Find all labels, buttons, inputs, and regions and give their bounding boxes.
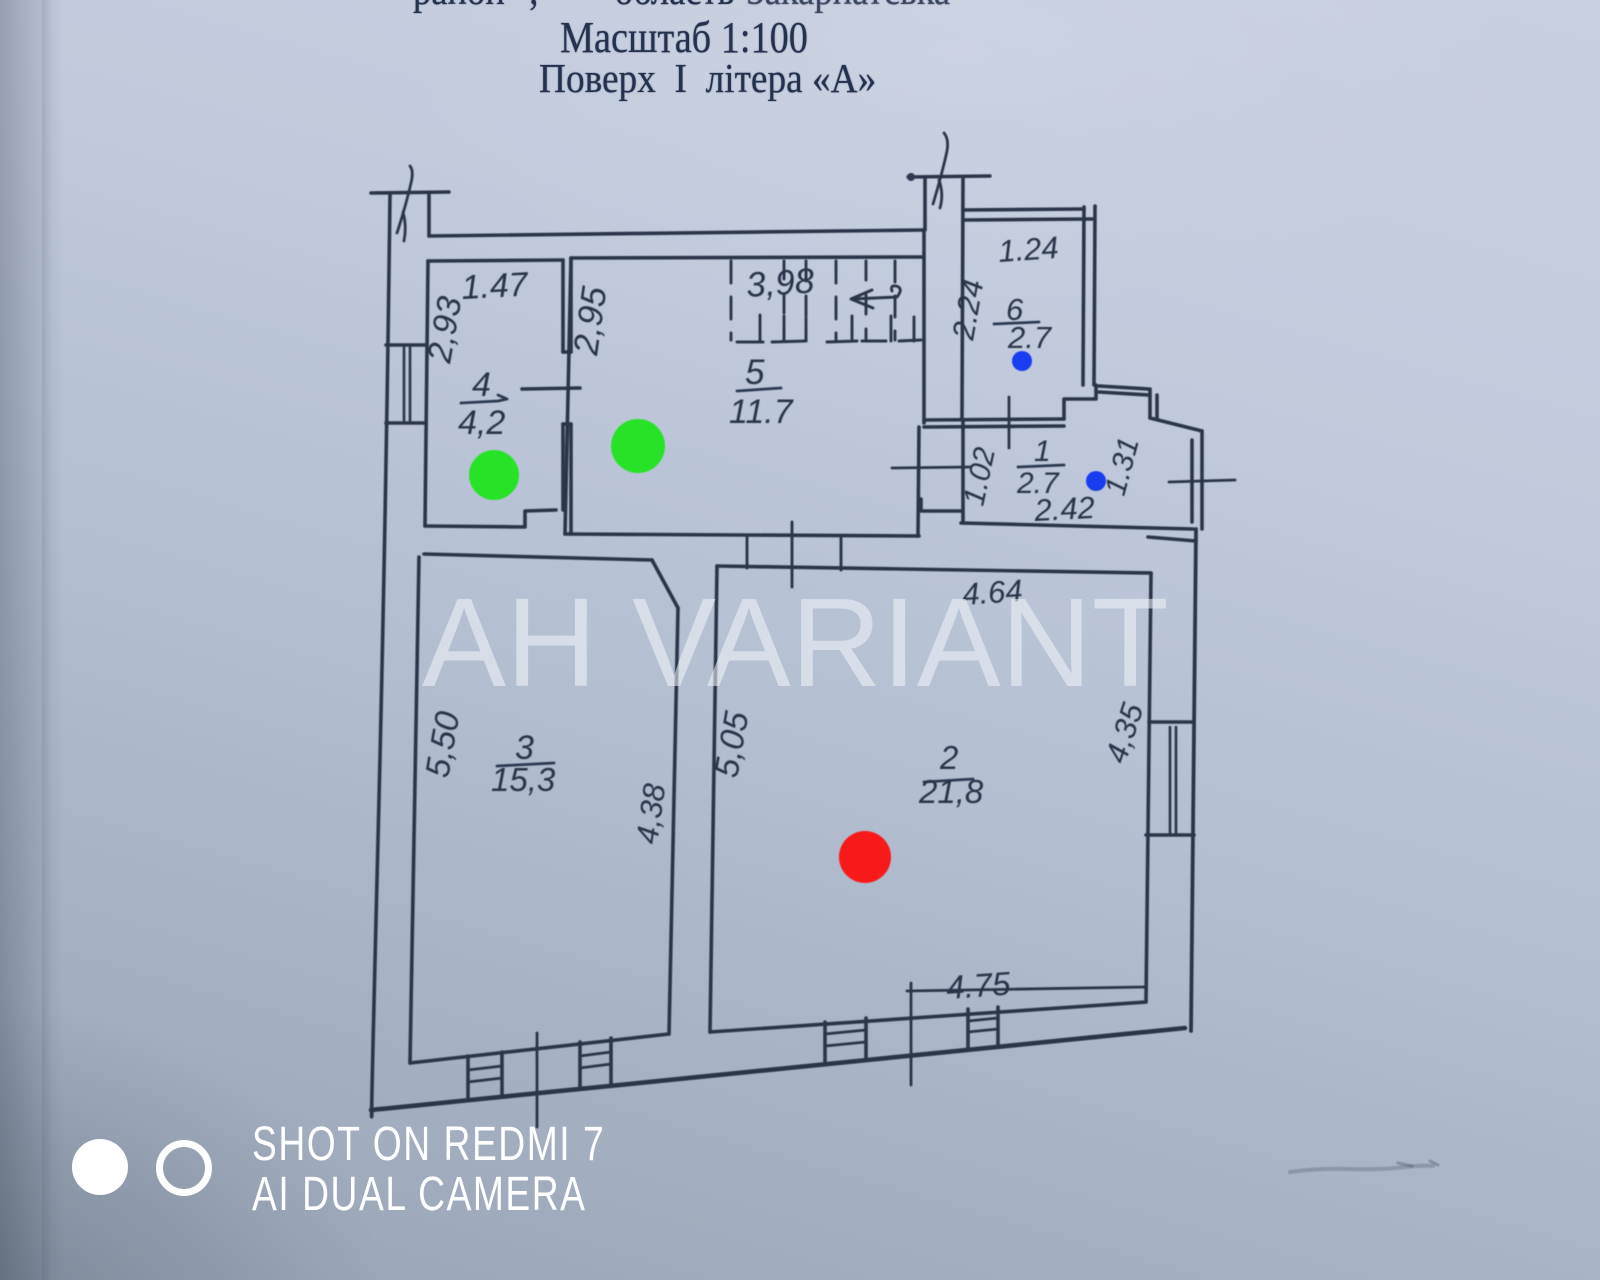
- svg-text:1.47: 1.47: [460, 266, 529, 307]
- svg-text:2.42: 2.42: [1033, 490, 1096, 528]
- svg-text:15,3: 15,3: [491, 761, 556, 798]
- svg-text:1.24: 1.24: [997, 230, 1060, 269]
- svg-text:4.75: 4.75: [945, 965, 1012, 1006]
- svg-text:5: 5: [745, 353, 765, 392]
- svg-text:5,50: 5,50: [418, 709, 467, 781]
- svg-text:4: 4: [472, 366, 491, 404]
- svg-text:2.24: 2.24: [945, 277, 990, 343]
- svg-text:1: 1: [1034, 435, 1051, 468]
- svg-text:2: 2: [939, 739, 958, 776]
- svg-text:1.31: 1.31: [1099, 434, 1146, 499]
- svg-text:11.7: 11.7: [729, 393, 794, 431]
- svg-text:3,98: 3,98: [745, 261, 816, 305]
- svg-text:2.7: 2.7: [1007, 320, 1053, 355]
- svg-text:4,38: 4,38: [629, 781, 672, 846]
- svg-text:2,95: 2,95: [566, 284, 614, 358]
- svg-text:21,8: 21,8: [918, 773, 984, 810]
- svg-text:4,2: 4,2: [458, 404, 505, 442]
